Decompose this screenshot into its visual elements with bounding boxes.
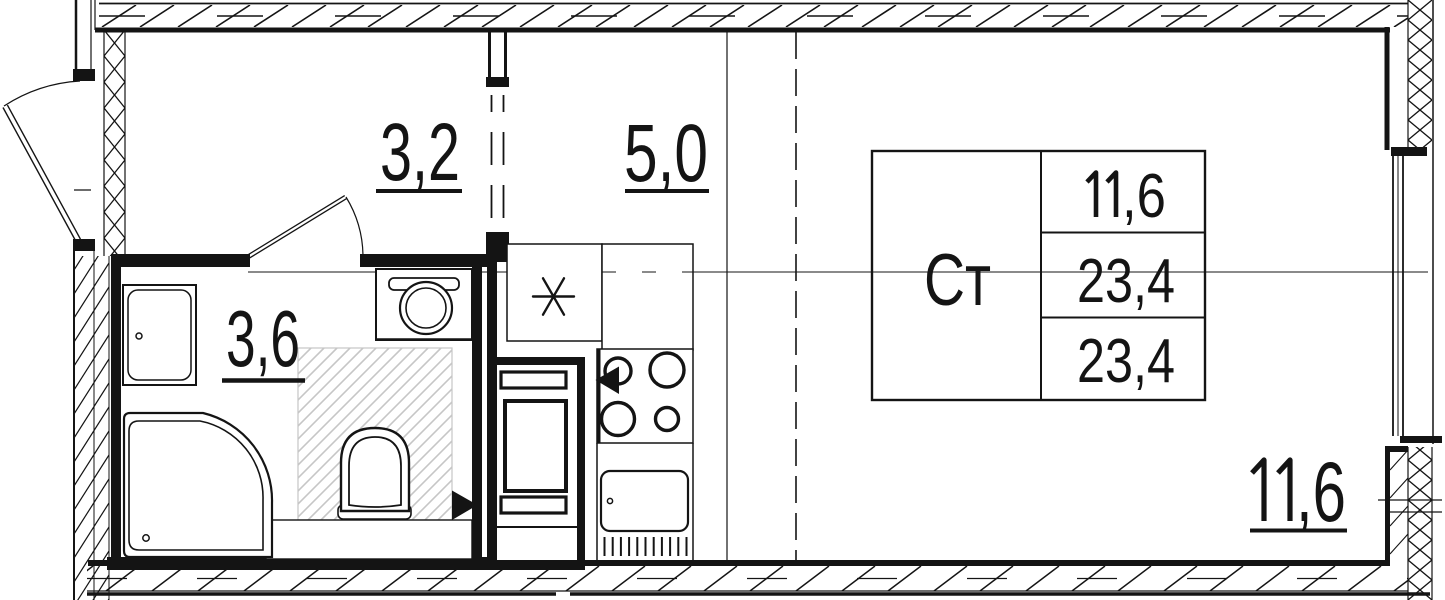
svg-text:,6: ,6 [1296, 445, 1346, 539]
svg-text:Ст: Ст [924, 240, 991, 321]
svg-text:3,2: 3,2 [380, 107, 460, 198]
svg-text:23,4: 23,4 [1077, 247, 1175, 316]
svg-text:23,4: 23,4 [1077, 327, 1175, 396]
svg-text:3,6: 3,6 [226, 294, 300, 383]
svg-text:5,0: 5,0 [624, 108, 708, 199]
svg-text:,6: ,6 [1122, 162, 1166, 231]
